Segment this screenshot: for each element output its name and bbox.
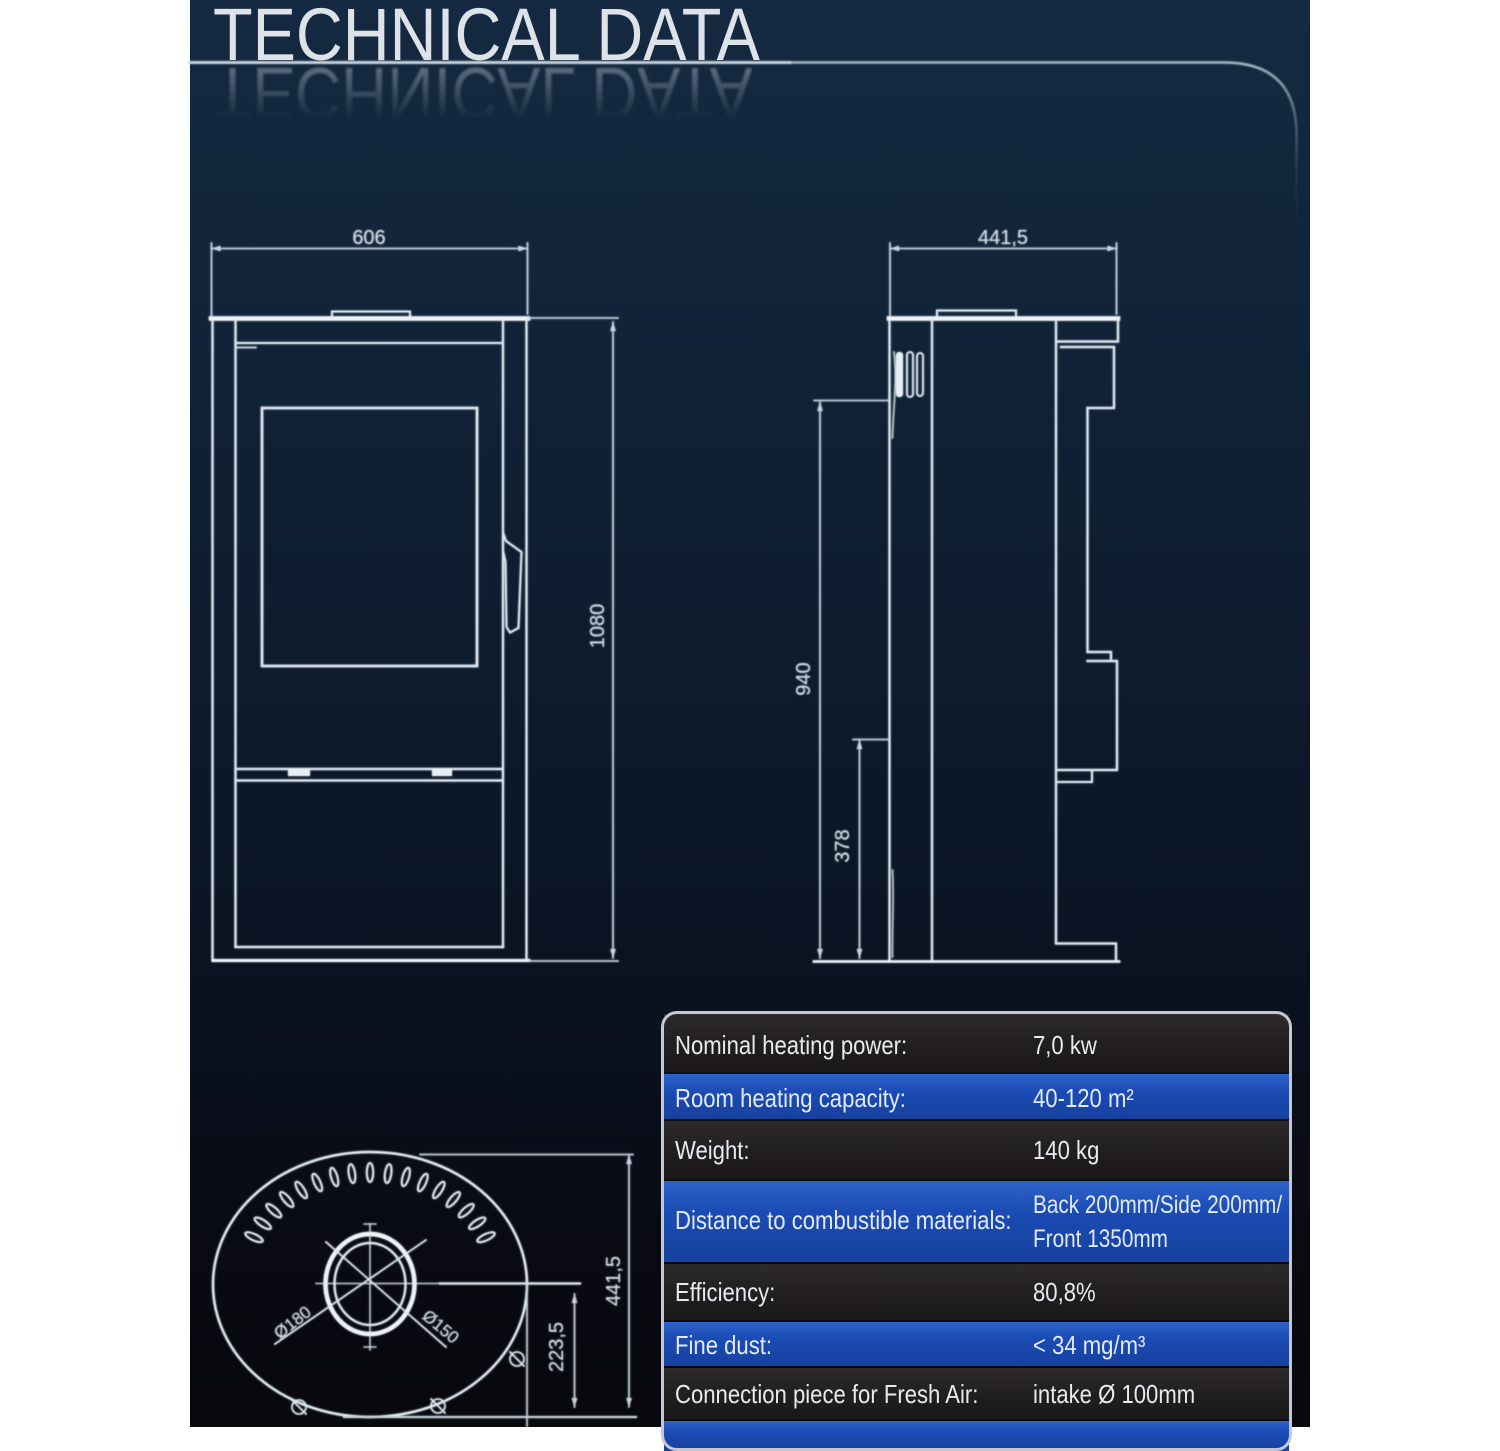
svg-text:223,5: 223,5 [546, 1322, 568, 1372]
svg-text:940: 940 [793, 662, 815, 695]
svg-text:378: 378 [832, 829, 854, 862]
svg-text:441,5: 441,5 [603, 1256, 625, 1306]
svg-text:Ø180: Ø180 [270, 1302, 314, 1343]
svg-text:1080: 1080 [587, 604, 609, 649]
svg-text:441,5: 441,5 [978, 227, 1028, 249]
svg-text:606: 606 [352, 227, 385, 249]
